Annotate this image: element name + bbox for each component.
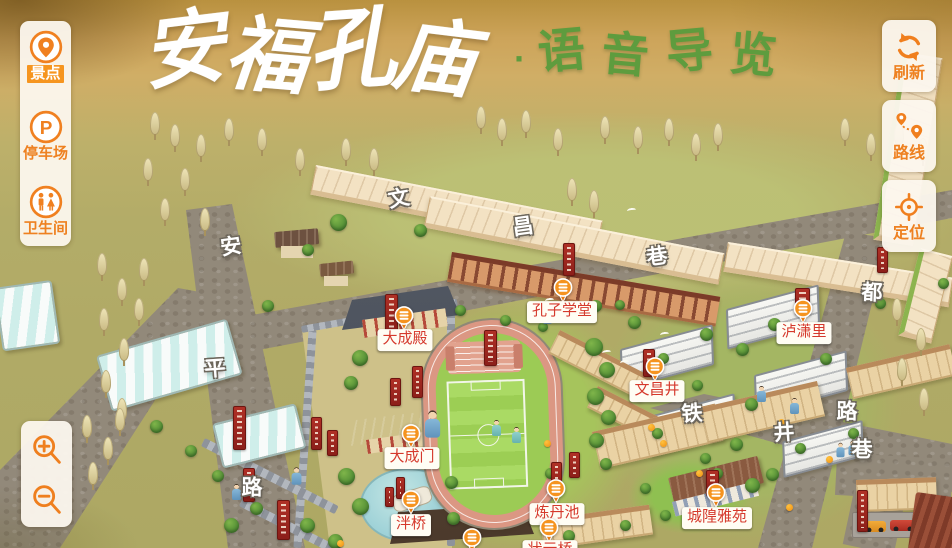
poi-label-城隍雅苑[interactable]: 城隍雅苑: [682, 507, 752, 529]
sidebar-label-restroom: 卫生间: [23, 220, 68, 238]
poi-marker-孔子学堂[interactable]: [553, 278, 573, 303]
scenic-pin-icon: [28, 29, 64, 65]
locate-icon: [892, 190, 926, 224]
zoom-out-button[interactable]: [28, 481, 66, 519]
poi-label-泸潇里[interactable]: 泸潇里: [776, 322, 831, 344]
locate-button[interactable]: 定位: [882, 180, 936, 252]
sidebar-item-restroom[interactable]: 卫生间: [20, 184, 71, 238]
route-icon: [892, 110, 926, 144]
refresh-icon: [892, 30, 926, 64]
poi-marker-炼丹池[interactable]: [546, 479, 566, 504]
refresh-button[interactable]: 刷新: [882, 20, 936, 92]
sidebar-label-scenic-spots: 景点: [27, 65, 63, 83]
poi-label-大成门[interactable]: 大成门: [384, 447, 439, 469]
restroom-icon: [28, 184, 64, 220]
sidebar-item-scenic-spots[interactable]: 景点: [20, 29, 71, 83]
route-button[interactable]: 路线: [882, 100, 936, 172]
poi-label-大成殿[interactable]: 大成殿: [377, 329, 432, 351]
poi-layer: 大成殿孔子学堂泸潇里文昌井大成门泮桥炼丹池城隍雅苑状元桥: [0, 0, 952, 548]
sidebar-item-parking[interactable]: P 停车场: [20, 109, 71, 163]
anfu-temple-voice-guide-app: 安平路文昌巷都路巷铁井 大成殿孔子学堂泸潇里文昌井大成门泮桥炼丹池城隍雅苑状元桥…: [0, 0, 952, 548]
parking-icon: P: [28, 109, 64, 145]
poi-label-泮桥[interactable]: 泮桥: [391, 514, 431, 536]
poi-marker-状元桥[interactable]: [539, 518, 559, 543]
poi-marker-文昌井[interactable]: [645, 357, 665, 382]
left-toolbar: 景点 P 停车场 卫生间: [20, 21, 71, 246]
poi-marker-unnamed[interactable]: [462, 528, 482, 548]
poi-marker-大成殿[interactable]: [394, 306, 414, 331]
zoom-controls: [21, 421, 72, 527]
poi-label-孔子学堂[interactable]: 孔子学堂: [527, 301, 597, 323]
sidebar-label-parking: 停车场: [23, 145, 68, 163]
map-canvas[interactable]: 安平路文昌巷都路巷铁井 大成殿孔子学堂泸潇里文昌井大成门泮桥炼丹池城隍雅苑状元桥: [0, 0, 952, 548]
svg-text:P: P: [39, 118, 52, 139]
poi-label-文昌井[interactable]: 文昌井: [629, 380, 684, 402]
poi-label-状元桥[interactable]: 状元桥: [522, 540, 577, 548]
zoom-in-button[interactable]: [28, 431, 66, 469]
route-label: 路线: [893, 145, 925, 163]
poi-marker-泸潇里[interactable]: [793, 299, 813, 324]
poi-marker-大成门[interactable]: [401, 424, 421, 449]
refresh-label: 刷新: [893, 65, 925, 83]
locate-label: 定位: [893, 225, 925, 243]
poi-marker-城隍雅苑[interactable]: [706, 483, 726, 508]
poi-marker-泮桥[interactable]: [401, 490, 421, 515]
